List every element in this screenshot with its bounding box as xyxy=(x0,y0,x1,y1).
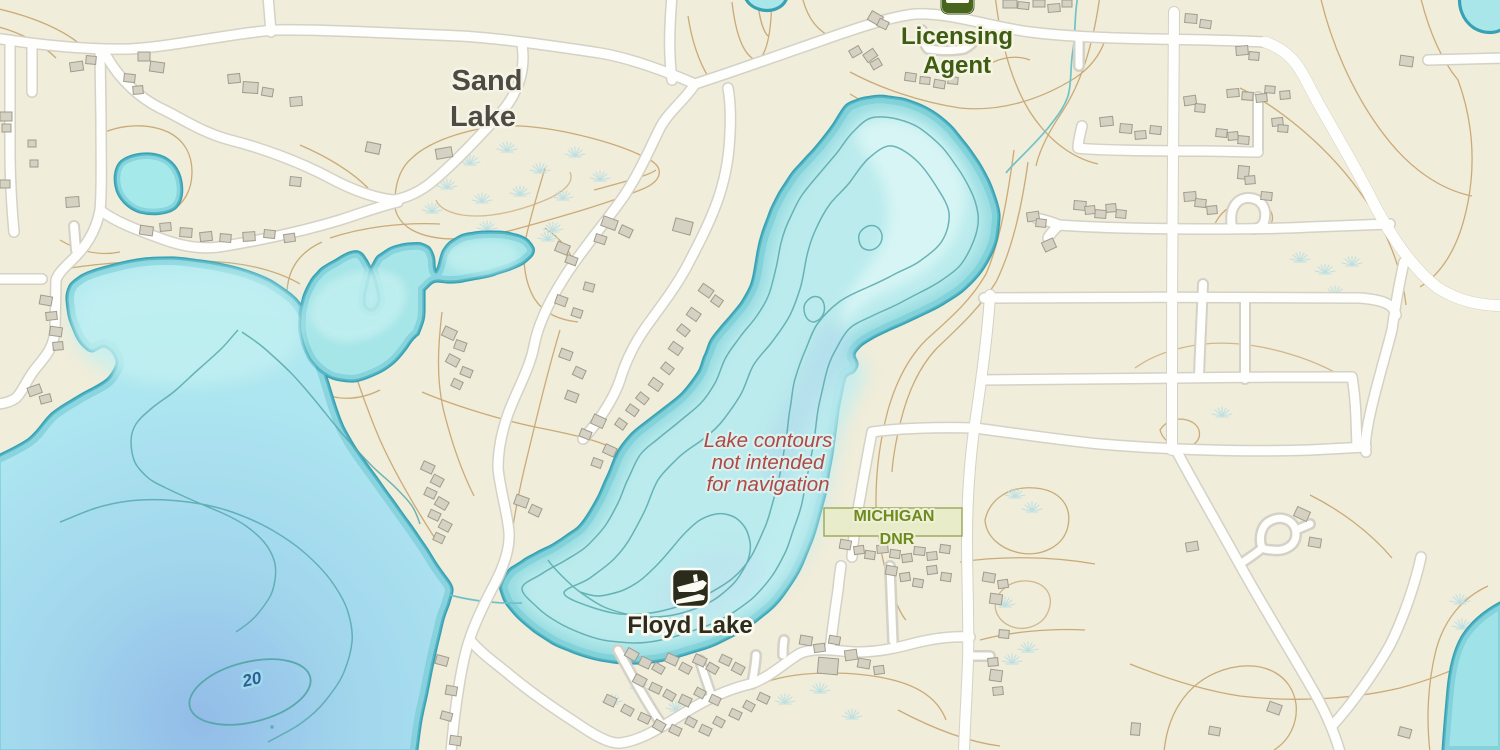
svg-text:Floyd Lake: Floyd Lake xyxy=(627,612,752,639)
svg-text:Sand: Sand xyxy=(452,65,523,97)
svg-text:Agent: Agent xyxy=(923,52,991,79)
svg-text:Lake: Lake xyxy=(450,101,516,133)
svg-text:Lake contours: Lake contours xyxy=(704,429,833,452)
svg-text:DNR: DNR xyxy=(880,531,915,548)
svg-text:not intended: not intended xyxy=(712,451,825,474)
svg-text:MICHIGAN: MICHIGAN xyxy=(854,508,935,525)
svg-text:for navigation: for navigation xyxy=(706,473,829,496)
svg-text:Licensing: Licensing xyxy=(901,23,1013,50)
